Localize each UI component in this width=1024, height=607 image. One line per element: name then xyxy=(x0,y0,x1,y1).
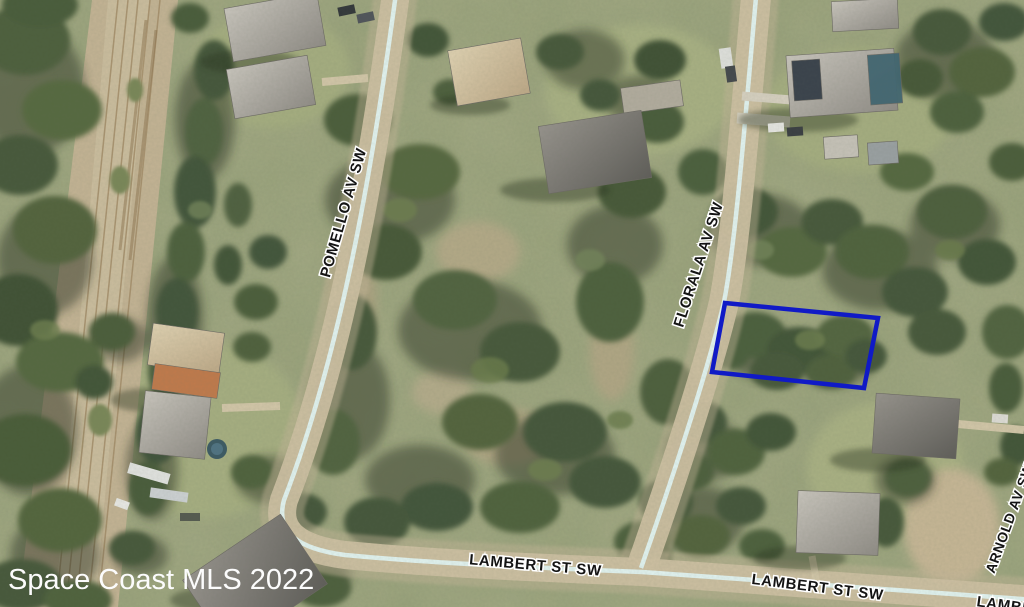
watermark-text: Space Coast MLS 2022 xyxy=(8,564,314,596)
aerial-map: POMELLO AV SW FLORALA AV SW LAMBERT ST S… xyxy=(0,0,1024,607)
grain-overlay xyxy=(0,0,1024,607)
aerial-photo: POMELLO AV SW FLORALA AV SW LAMBERT ST S… xyxy=(0,0,1024,607)
